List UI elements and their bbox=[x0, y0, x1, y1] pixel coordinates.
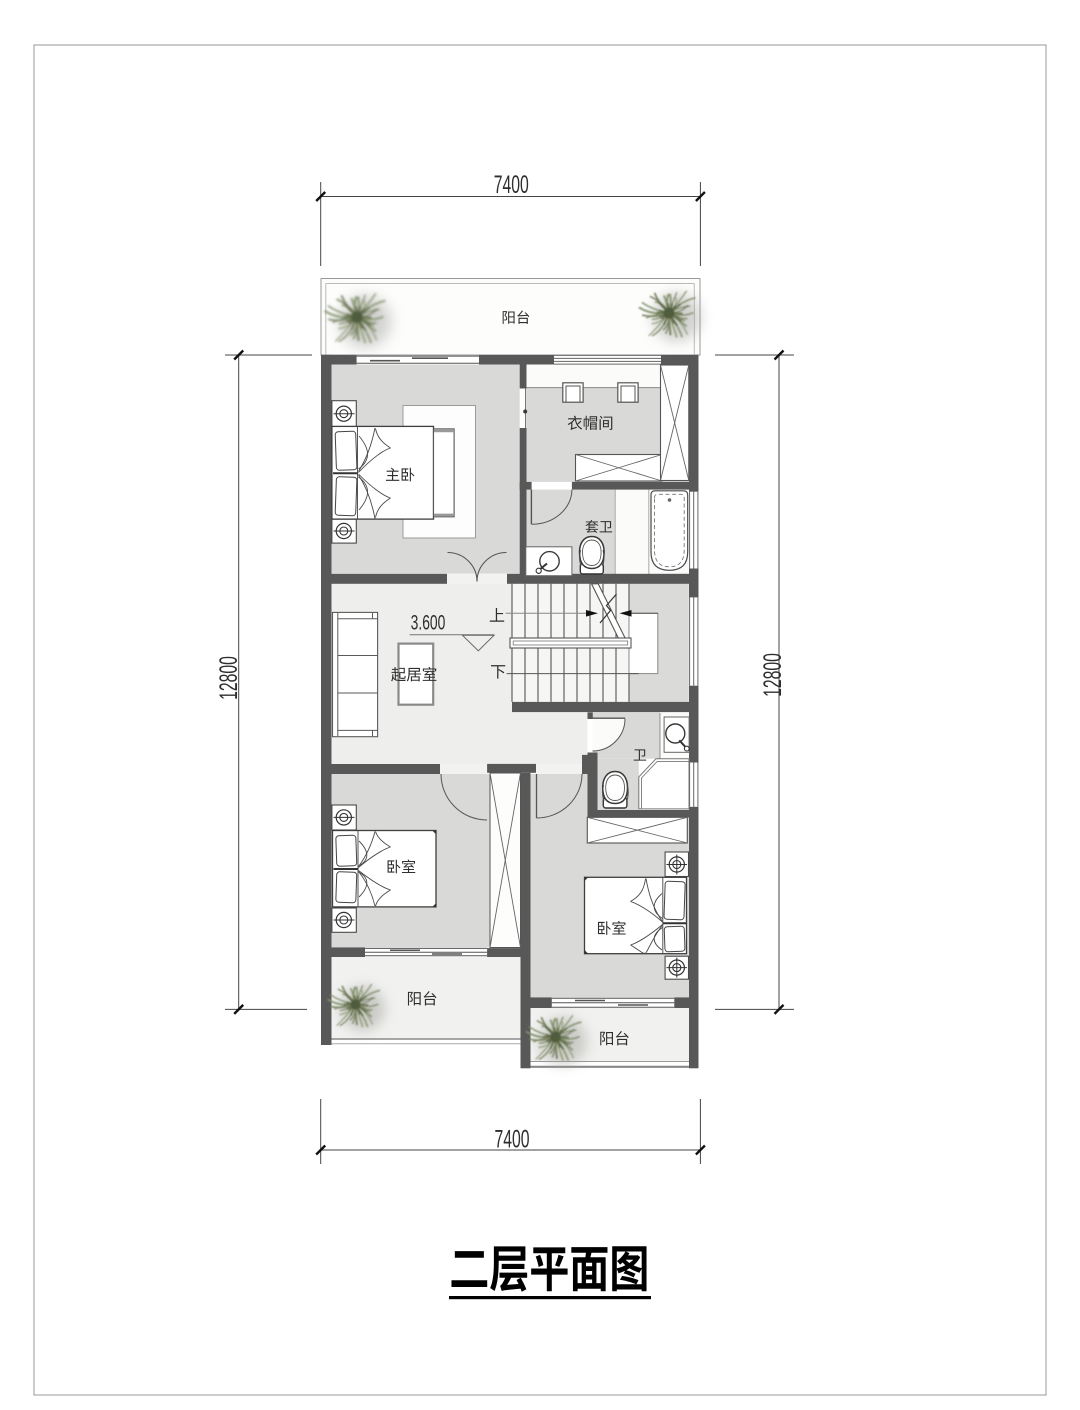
svg-text:7400: 7400 bbox=[494, 171, 529, 199]
svg-text:12800: 12800 bbox=[759, 653, 787, 697]
svg-text:12800: 12800 bbox=[215, 656, 243, 700]
svg-text:7400: 7400 bbox=[494, 1126, 529, 1154]
svg-text:3.600: 3.600 bbox=[411, 611, 446, 635]
